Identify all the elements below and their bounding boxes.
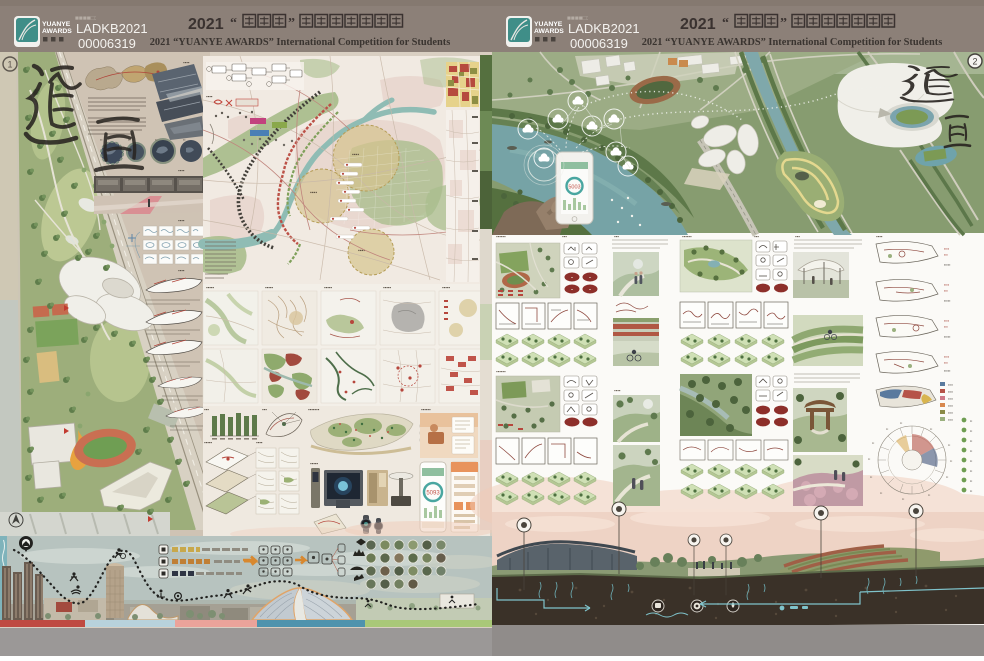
svg-text:▪▪: ▪▪ (950, 459, 952, 463)
svg-text:▪▪: ▪▪ (970, 439, 972, 443)
svg-text:▪▪▪▪: ▪▪▪▪ (948, 397, 953, 401)
svg-text:▪▪▪: ▪▪▪ (204, 407, 209, 412)
svg-text:▪▪▪▪: ▪▪▪▪ (178, 218, 185, 223)
svg-text:▪▪▪▪▪: ▪▪▪▪▪ (204, 440, 212, 445)
svg-text:▪▪▪▪▪▪: ▪▪▪▪▪▪ (496, 369, 506, 374)
svg-text:▪▪: ▪▪ (155, 138, 157, 142)
svg-text:1: 1 (7, 59, 12, 69)
svg-text:▪▪: ▪▪ (589, 276, 591, 280)
svg-text:▪▪▪▪▪▪: ▪▪▪▪▪▪ (421, 407, 431, 412)
svg-text:▪▪: ▪▪ (872, 441, 874, 445)
svg-text:▪▪▪▪: ▪▪▪▪ (944, 247, 949, 251)
svg-text:▪▪▪▪: ▪▪▪▪ (944, 319, 949, 323)
svg-text:▪▪▪: ▪▪▪ (944, 361, 948, 365)
svg-text:▪▪▪▪▪: ▪▪▪▪▪ (944, 335, 950, 339)
svg-text:▪▪▪▪▪: ▪▪▪▪▪ (944, 369, 950, 373)
svg-text:▪▪▪: ▪▪▪ (944, 253, 948, 257)
svg-text:▪▪: ▪▪ (970, 479, 972, 483)
svg-text:▪▪▪▪: ▪▪▪▪ (310, 190, 317, 196)
svg-text:▪▪▪: ▪▪▪ (614, 234, 619, 239)
svg-text:▪▪▪: ▪▪▪ (795, 234, 800, 239)
svg-text:▪▪: ▪▪ (183, 138, 185, 142)
svg-text:▪▪▪▪▪▪▪: ▪▪▪▪▪▪▪ (308, 407, 320, 412)
svg-text:▪▪: ▪▪ (970, 489, 972, 493)
svg-text:▪▪▪▪: ▪▪▪▪ (948, 404, 953, 408)
svg-text:▪▪▪: ▪▪▪ (944, 325, 948, 329)
svg-text:2: 2 (972, 56, 977, 66)
svg-text:▪▪: ▪▪ (571, 288, 573, 292)
svg-text:▪▪▪▪▪▪: ▪▪▪▪▪▪ (682, 234, 692, 239)
svg-text:▪▪▪▪: ▪▪▪▪ (876, 234, 883, 239)
svg-text:▪▪▪▪: ▪▪▪▪ (614, 388, 621, 393)
svg-text:▪▪▪▪▪: ▪▪▪▪▪ (944, 263, 950, 267)
svg-text:▪▪▪▪▪: ▪▪▪▪▪ (383, 285, 391, 290)
svg-text:▪▪▪: ▪▪▪ (562, 234, 567, 239)
svg-text:▪▪▪▪▪: ▪▪▪▪▪ (442, 285, 450, 290)
svg-text:▪▪: ▪▪ (589, 288, 591, 292)
svg-text:▪▪: ▪▪ (902, 497, 904, 501)
svg-text:▪▪▪▪: ▪▪▪▪ (256, 440, 263, 445)
svg-text:▪▪▪▪: ▪▪▪▪ (948, 411, 953, 415)
svg-text:5003: 5003 (568, 185, 580, 191)
svg-text:▪▪▪▪▪▪: ▪▪▪▪▪▪ (496, 234, 506, 239)
svg-text:▪▪▪▪: ▪▪▪▪ (948, 383, 953, 387)
svg-text:▪▪: ▪▪ (970, 449, 972, 453)
svg-text:▪▪▪▪▪: ▪▪▪▪▪ (265, 285, 273, 290)
svg-text:▪▪: ▪▪ (886, 427, 888, 431)
svg-text:▪▪: ▪▪ (970, 429, 972, 433)
svg-text:▪▪▪▪: ▪▪▪▪ (178, 168, 185, 173)
svg-text:▪▪: ▪▪ (900, 421, 902, 425)
svg-text:▪▪: ▪▪ (970, 459, 972, 463)
svg-text:▪▪: ▪▪ (946, 475, 948, 479)
svg-text:▪▪▪: ▪▪▪ (262, 407, 267, 412)
svg-text:▪▪▪▪: ▪▪▪▪ (944, 283, 949, 287)
svg-text:▪▪▪: ▪▪▪ (754, 234, 759, 239)
svg-text:▪▪▪▪: ▪▪▪▪ (944, 355, 949, 359)
svg-text:▪▪▪▪: ▪▪▪▪ (948, 418, 953, 422)
svg-text:▪▪▪▪▪: ▪▪▪▪▪ (206, 285, 214, 290)
svg-text:▪▪: ▪▪ (970, 469, 972, 473)
svg-text:▪▪: ▪▪ (571, 276, 573, 280)
svg-text:▪▪▪▪▪: ▪▪▪▪▪ (324, 285, 332, 290)
svg-text:▪▪: ▪▪ (100, 138, 102, 142)
svg-text:▪▪: ▪▪ (928, 493, 930, 497)
svg-text:▪▪▪▪▪: ▪▪▪▪▪ (944, 299, 950, 303)
svg-text:▪▪▪▪: ▪▪▪▪ (948, 390, 953, 394)
svg-text:▪▪▪▪: ▪▪▪▪ (178, 268, 185, 273)
svg-text:▪▪: ▪▪ (870, 475, 872, 479)
svg-text:5093: 5093 (426, 491, 440, 497)
svg-text:▪▪▪: ▪▪▪ (944, 289, 948, 293)
svg-text:▪▪: ▪▪ (970, 419, 972, 423)
svg-text:▪▪: ▪▪ (948, 443, 950, 447)
svg-text:▪▪: ▪▪ (868, 457, 870, 461)
svg-text:▪▪: ▪▪ (930, 427, 932, 431)
svg-text:▪▪▪▪: ▪▪▪▪ (183, 60, 190, 65)
svg-text:▪▪: ▪▪ (880, 491, 882, 495)
svg-text:▪▪▪▪▪: ▪▪▪▪▪ (310, 461, 318, 466)
svg-text:▪▪▪▪: ▪▪▪▪ (206, 94, 213, 99)
